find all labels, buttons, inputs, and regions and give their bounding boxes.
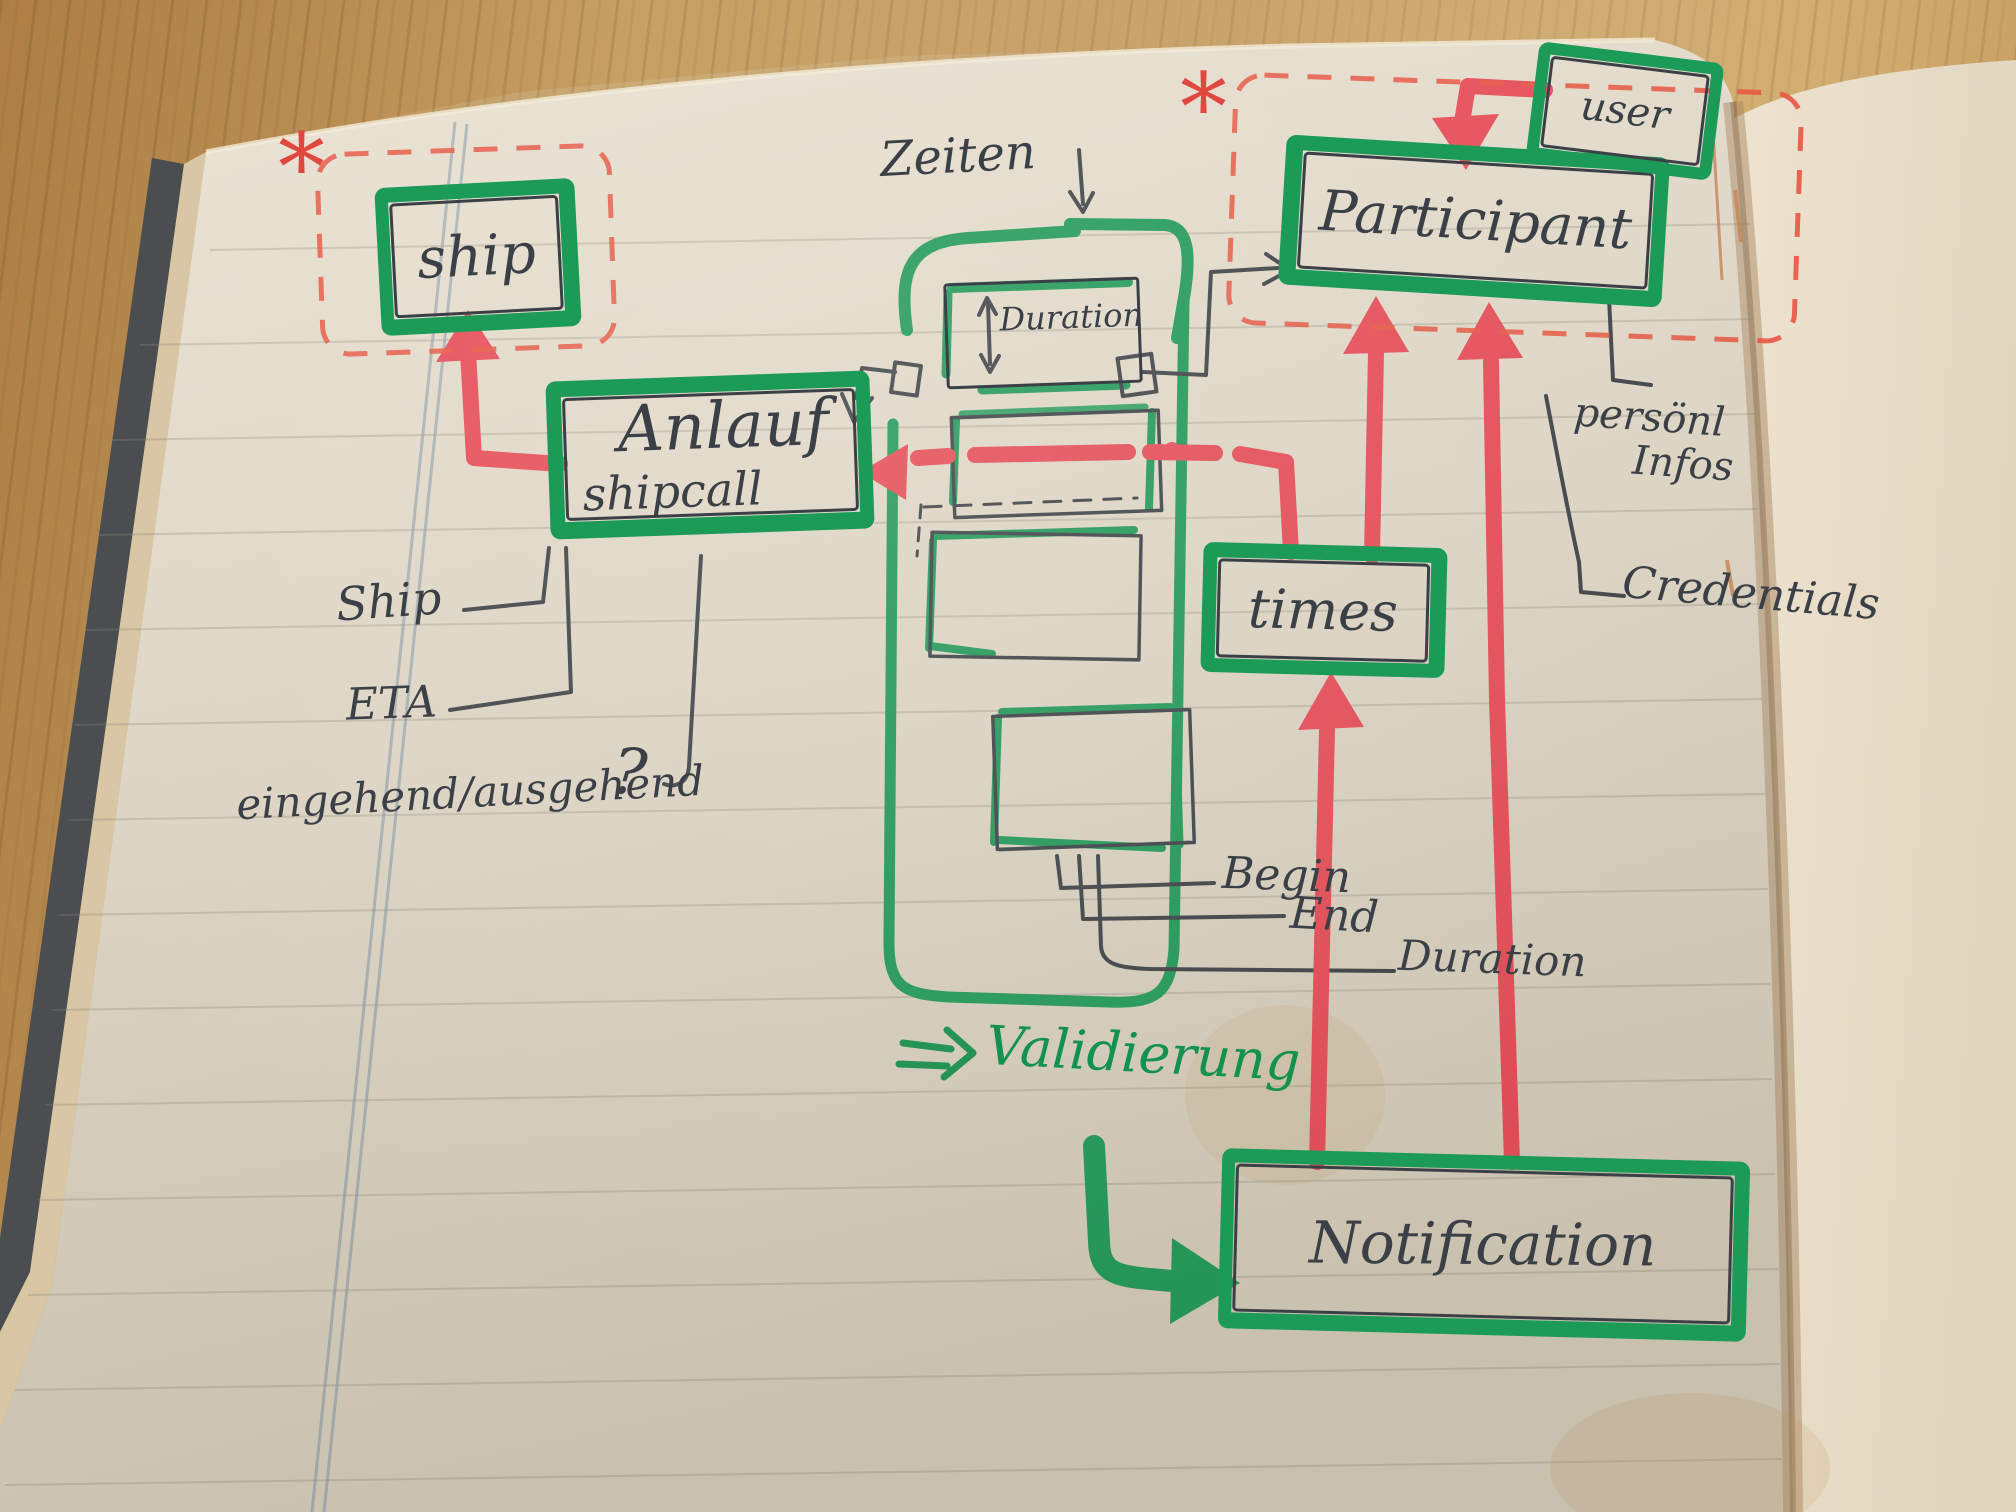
node-shipcall-label: Anlauf — [616, 386, 829, 467]
zeiten-label: Zeiten — [879, 124, 1037, 188]
node-shipcall: Anlauf shipcall — [545, 370, 874, 539]
node-ship-label: ship — [416, 221, 538, 292]
ship-attribute-label: Ship — [334, 570, 443, 631]
node-notification-label: Notification — [1309, 1208, 1657, 1279]
node-ship: ship — [374, 178, 581, 336]
node-user-label: user — [1578, 83, 1672, 140]
node-notification: Notification — [1218, 1148, 1751, 1342]
arrow-times-to-participant — [1372, 352, 1376, 556]
eta-attribute-label: ETA — [345, 676, 438, 730]
node-times: times — [1200, 542, 1447, 678]
arrow-notification-to-times — [1317, 730, 1327, 1162]
personal-infos-line2: Infos — [1631, 438, 1735, 491]
node-duration: Duration — [943, 277, 1143, 390]
node-participant-label: Participant — [1317, 179, 1633, 263]
node-user: user — [1526, 41, 1725, 181]
dash-dot — [1164, 442, 1180, 458]
asterisk-ship: * — [278, 148, 325, 190]
node-shipcall-sublabel: shipcall — [582, 461, 764, 521]
asterisk-participant: * — [1180, 88, 1227, 130]
node-times-label: times — [1247, 577, 1398, 644]
end-attribute-label: End — [1289, 888, 1380, 944]
node-duration-label: Duration — [999, 296, 1144, 339]
personal-infos-line1: persönl — [1572, 389, 1726, 445]
notebook-photo: ship Anlauf shipcall Participant user ti… — [0, 0, 2016, 1512]
personal-infos-label: persönl Infos — [1569, 390, 1738, 489]
duration-attribute-label: Duration — [1397, 931, 1587, 987]
